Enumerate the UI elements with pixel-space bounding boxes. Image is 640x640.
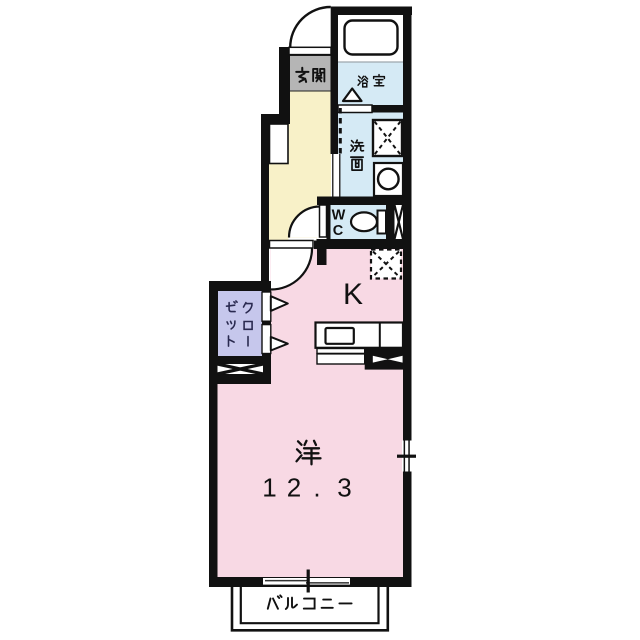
svg-text:K: K	[343, 278, 363, 311]
svg-text:C: C	[333, 223, 344, 239]
svg-text:.: .	[313, 473, 320, 503]
svg-text:W: W	[332, 207, 346, 223]
svg-text:3: 3	[337, 473, 351, 503]
svg-text:2: 2	[287, 473, 301, 503]
svg-text:1: 1	[262, 473, 276, 503]
